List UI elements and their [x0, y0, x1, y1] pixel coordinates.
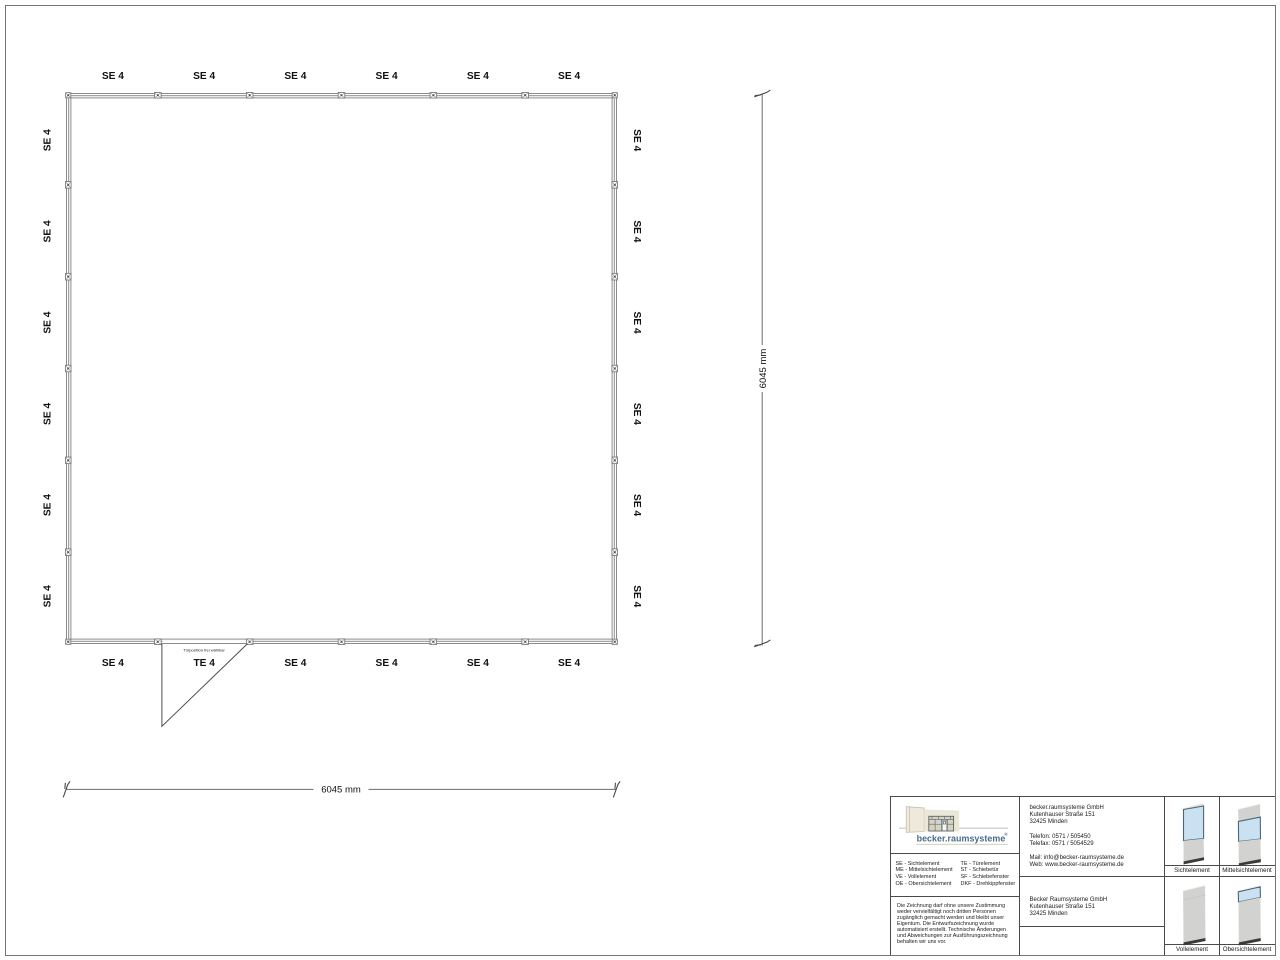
svg-text:SE 4: SE 4 — [42, 129, 53, 151]
svg-text:SE 4: SE 4 — [631, 312, 642, 334]
svg-text:SE 4: SE 4 — [42, 220, 53, 242]
svg-text:SE 4: SE 4 — [376, 658, 398, 669]
svg-text:SE 4: SE 4 — [376, 71, 398, 82]
svg-text:SE 4: SE 4 — [631, 494, 642, 516]
svg-text:SE 4: SE 4 — [467, 71, 489, 82]
svg-text:SE 4: SE 4 — [102, 658, 124, 669]
svg-text:SE 4: SE 4 — [284, 658, 306, 669]
svg-text:SE 4: SE 4 — [43, 403, 54, 425]
svg-text:®: ® — [1004, 832, 1008, 837]
svg-text:SE 4: SE 4 — [631, 129, 642, 151]
svg-text:becker.raumsysteme: becker.raumsysteme — [917, 833, 1006, 843]
svg-text:SE 4: SE 4 — [284, 71, 306, 82]
svg-text:SE 4: SE 4 — [631, 220, 642, 242]
svg-text:SE 4: SE 4 — [631, 403, 642, 425]
svg-text:SE 4: SE 4 — [102, 71, 124, 82]
svg-text:SE 4: SE 4 — [631, 585, 642, 607]
svg-text:SE 4: SE 4 — [43, 494, 54, 516]
svg-text:TE 4: TE 4 — [193, 658, 215, 669]
svg-text:SE 4: SE 4 — [558, 658, 580, 669]
svg-text:6045 mm: 6045 mm — [758, 349, 769, 389]
svg-text:SE 4: SE 4 — [558, 71, 580, 82]
svg-text:6045 mm: 6045 mm — [321, 785, 361, 796]
svg-text:SE 4: SE 4 — [43, 585, 54, 607]
svg-text:Türposition frei wählbar: Türposition frei wählbar — [183, 648, 225, 653]
svg-text:SE 4: SE 4 — [43, 311, 54, 333]
svg-text:SE 4: SE 4 — [467, 658, 489, 669]
svg-text:SE 4: SE 4 — [193, 71, 215, 82]
